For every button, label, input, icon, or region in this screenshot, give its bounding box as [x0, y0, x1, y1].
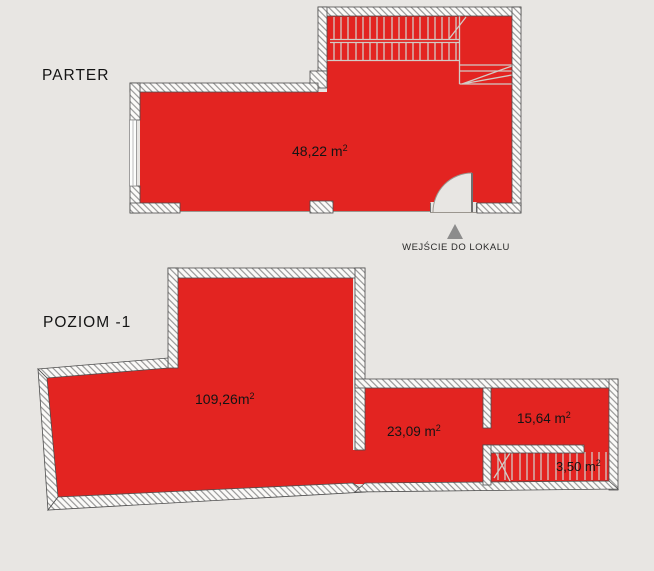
- parter-title: PARTER: [42, 67, 109, 84]
- entrance-annotation: WEJŚCIE DO LOKALU: [402, 224, 510, 253]
- poziom-title: POZIOM -1: [43, 314, 131, 331]
- wall: [483, 445, 584, 453]
- wall: [609, 379, 618, 490]
- wall: [168, 268, 365, 278]
- area-label-poziom-room15: 15,64 m2: [517, 410, 571, 426]
- area-label-poziom-room23: 23,09 m2: [387, 423, 441, 439]
- entrance-arrow-icon: [447, 224, 463, 239]
- wall: [130, 83, 140, 120]
- area-label-parter-main: 48,22 m2: [292, 143, 348, 159]
- wall: [318, 7, 521, 16]
- wall: [168, 268, 178, 368]
- poziom-main-room-area: [47, 278, 353, 497]
- parter-window: [130, 120, 137, 186]
- wall: [130, 83, 318, 92]
- entrance-label: WEJŚCIE DO LOKALU: [402, 241, 510, 253]
- floor-plan-canvas: 48,22 m2 PARTER WEJŚCIE DO LOKALU: [0, 0, 654, 571]
- poziom-plan: 109,26m2 23,09 m2 15,64 m2 3,50 m2: [38, 268, 618, 510]
- wall: [355, 379, 618, 388]
- wall: [483, 388, 491, 428]
- poziom-opening-patch: [350, 450, 366, 484]
- wall: [512, 7, 521, 213]
- area-label-poziom-stair: 3,50 m2: [556, 458, 601, 474]
- wall: [130, 203, 180, 213]
- wall: [318, 7, 327, 71]
- parter-plan: 48,22 m2: [130, 7, 522, 214]
- area-label-poziom-main: 109,26m2: [195, 391, 255, 407]
- wall: [355, 268, 365, 450]
- wall: [477, 203, 521, 213]
- wall: [483, 445, 491, 485]
- wall: [310, 201, 333, 213]
- floor-plan-drawing: 48,22 m2 PARTER WEJŚCIE DO LOKALU: [0, 0, 654, 571]
